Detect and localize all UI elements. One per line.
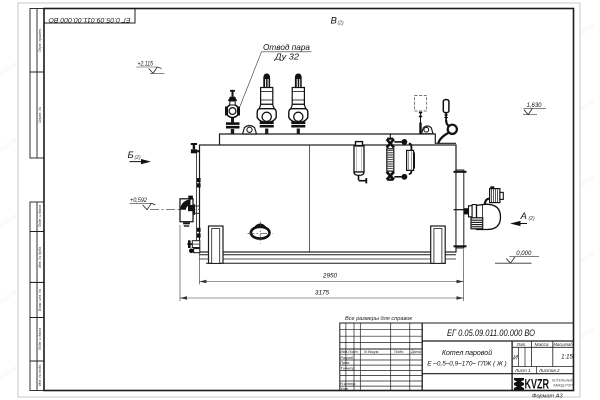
svg-text:(2): (2) xyxy=(338,21,344,27)
svg-text:Подп. и дата: Подп. и дата xyxy=(38,205,42,228)
svg-text:Утв.: Утв. xyxy=(340,387,349,391)
svg-text:KVZR: KVZR xyxy=(525,376,550,391)
svg-text:И: И xyxy=(513,355,518,362)
svg-text:Формат А3: Формат А3 xyxy=(532,394,563,400)
svg-text:Е –0,5–0,9–170– ГЛЖ ( Ж ): Е –0,5–0,9–170– ГЛЖ ( Ж ) xyxy=(427,361,506,368)
svg-text:Инв. № подл.: Инв. № подл. xyxy=(38,364,42,386)
svg-text:kvzr.ru: kvzr.ru xyxy=(0,0,19,2)
svg-text:kvzr.ru: kvzr.ru xyxy=(217,0,238,2)
svg-text:Инв. № дубл.: Инв. № дубл. xyxy=(38,246,42,268)
svg-text:ЗАВОД РЭП: ЗАВОД РЭП xyxy=(553,384,573,388)
svg-text:Н.контр.: Н.контр. xyxy=(340,382,356,386)
svg-text:Справ. №: Справ. № xyxy=(38,107,42,123)
svg-text:kvzr.ru: kvzr.ru xyxy=(0,136,19,153)
svg-text:(2): (2) xyxy=(529,216,535,222)
svg-text:КОТЕЛЬНЫЙ: КОТЕЛЬНЫЙ xyxy=(552,379,574,383)
svg-text:Перв. примен.: Перв. примен. xyxy=(38,28,42,52)
svg-text:Лист 1: Лист 1 xyxy=(514,368,531,373)
svg-text:Отвод пара: Отвод пара xyxy=(263,43,310,52)
svg-text:В: В xyxy=(331,16,338,27)
svg-text:kvzr.ru: kvzr.ru xyxy=(327,0,348,2)
svg-text:Б: Б xyxy=(128,150,134,161)
svg-text:kvzr.ru: kvzr.ru xyxy=(0,288,19,305)
svg-text:Лит.: Лит. xyxy=(516,342,527,347)
svg-text:kvzr.ru: kvzr.ru xyxy=(547,0,568,2)
svg-text:Ду 32: Ду 32 xyxy=(274,53,300,62)
svg-text:Подп.: Подп. xyxy=(394,350,404,354)
svg-text:3175: 3175 xyxy=(315,290,330,297)
svg-text:kvzr.ru: kvzr.ru xyxy=(492,0,513,2)
svg-text:kvzr.ru: kvzr.ru xyxy=(437,0,458,2)
svg-text:kvzr.ru: kvzr.ru xyxy=(382,0,403,2)
svg-text:Изм.Лист: Изм.Лист xyxy=(340,350,358,354)
svg-text:kvzr.ru: kvzr.ru xyxy=(162,0,183,2)
svg-text:+2,115: +2,115 xyxy=(138,62,154,68)
svg-text:1:15: 1:15 xyxy=(561,355,573,361)
svg-text:Все размеры для справок: Все размеры для справок xyxy=(345,316,412,322)
svg-text:Подп. и дата: Подп. и дата xyxy=(38,328,42,351)
svg-text:Т.контр.: Т.контр. xyxy=(340,366,355,370)
svg-text:Масштаб: Масштаб xyxy=(554,342,574,347)
svg-text:kvzr.ru: kvzr.ru xyxy=(0,212,19,229)
svg-text:Котел паровой: Котел паровой xyxy=(442,349,492,357)
svg-text:N докум.: N докум. xyxy=(364,350,379,354)
svg-text:+0,592: +0,592 xyxy=(130,198,148,204)
svg-text:Взам. инв. №: Взам. инв. № xyxy=(38,289,42,311)
svg-text:2950: 2950 xyxy=(322,273,338,280)
svg-text:А: А xyxy=(520,211,527,222)
svg-text:Разраб.: Разраб. xyxy=(340,356,354,360)
svg-text:kvzr.ru: kvzr.ru xyxy=(52,0,73,2)
svg-text:Масса: Масса xyxy=(535,342,550,347)
svg-text:(2): (2) xyxy=(135,155,141,161)
svg-text:Листов 2: Листов 2 xyxy=(538,368,560,373)
svg-text:ЕГ 0.05.09.011.00.000 ВО: ЕГ 0.05.09.011.00.000 ВО xyxy=(447,328,535,338)
svg-text:0,000: 0,000 xyxy=(516,251,532,257)
svg-text:kvzr.ru: kvzr.ru xyxy=(107,0,128,2)
svg-text:ЕГ 0.05.09.011.00.000 ВО: ЕГ 0.05.09.011.00.000 ВО xyxy=(48,16,130,23)
svg-text:kvzr.ru: kvzr.ru xyxy=(272,0,293,2)
svg-text:Пров.: Пров. xyxy=(340,361,350,365)
svg-text:kvzr.ru: kvzr.ru xyxy=(0,364,19,381)
svg-text:Дата: Дата xyxy=(410,350,421,354)
svg-text:kvzr.ru: kvzr.ru xyxy=(0,60,19,77)
